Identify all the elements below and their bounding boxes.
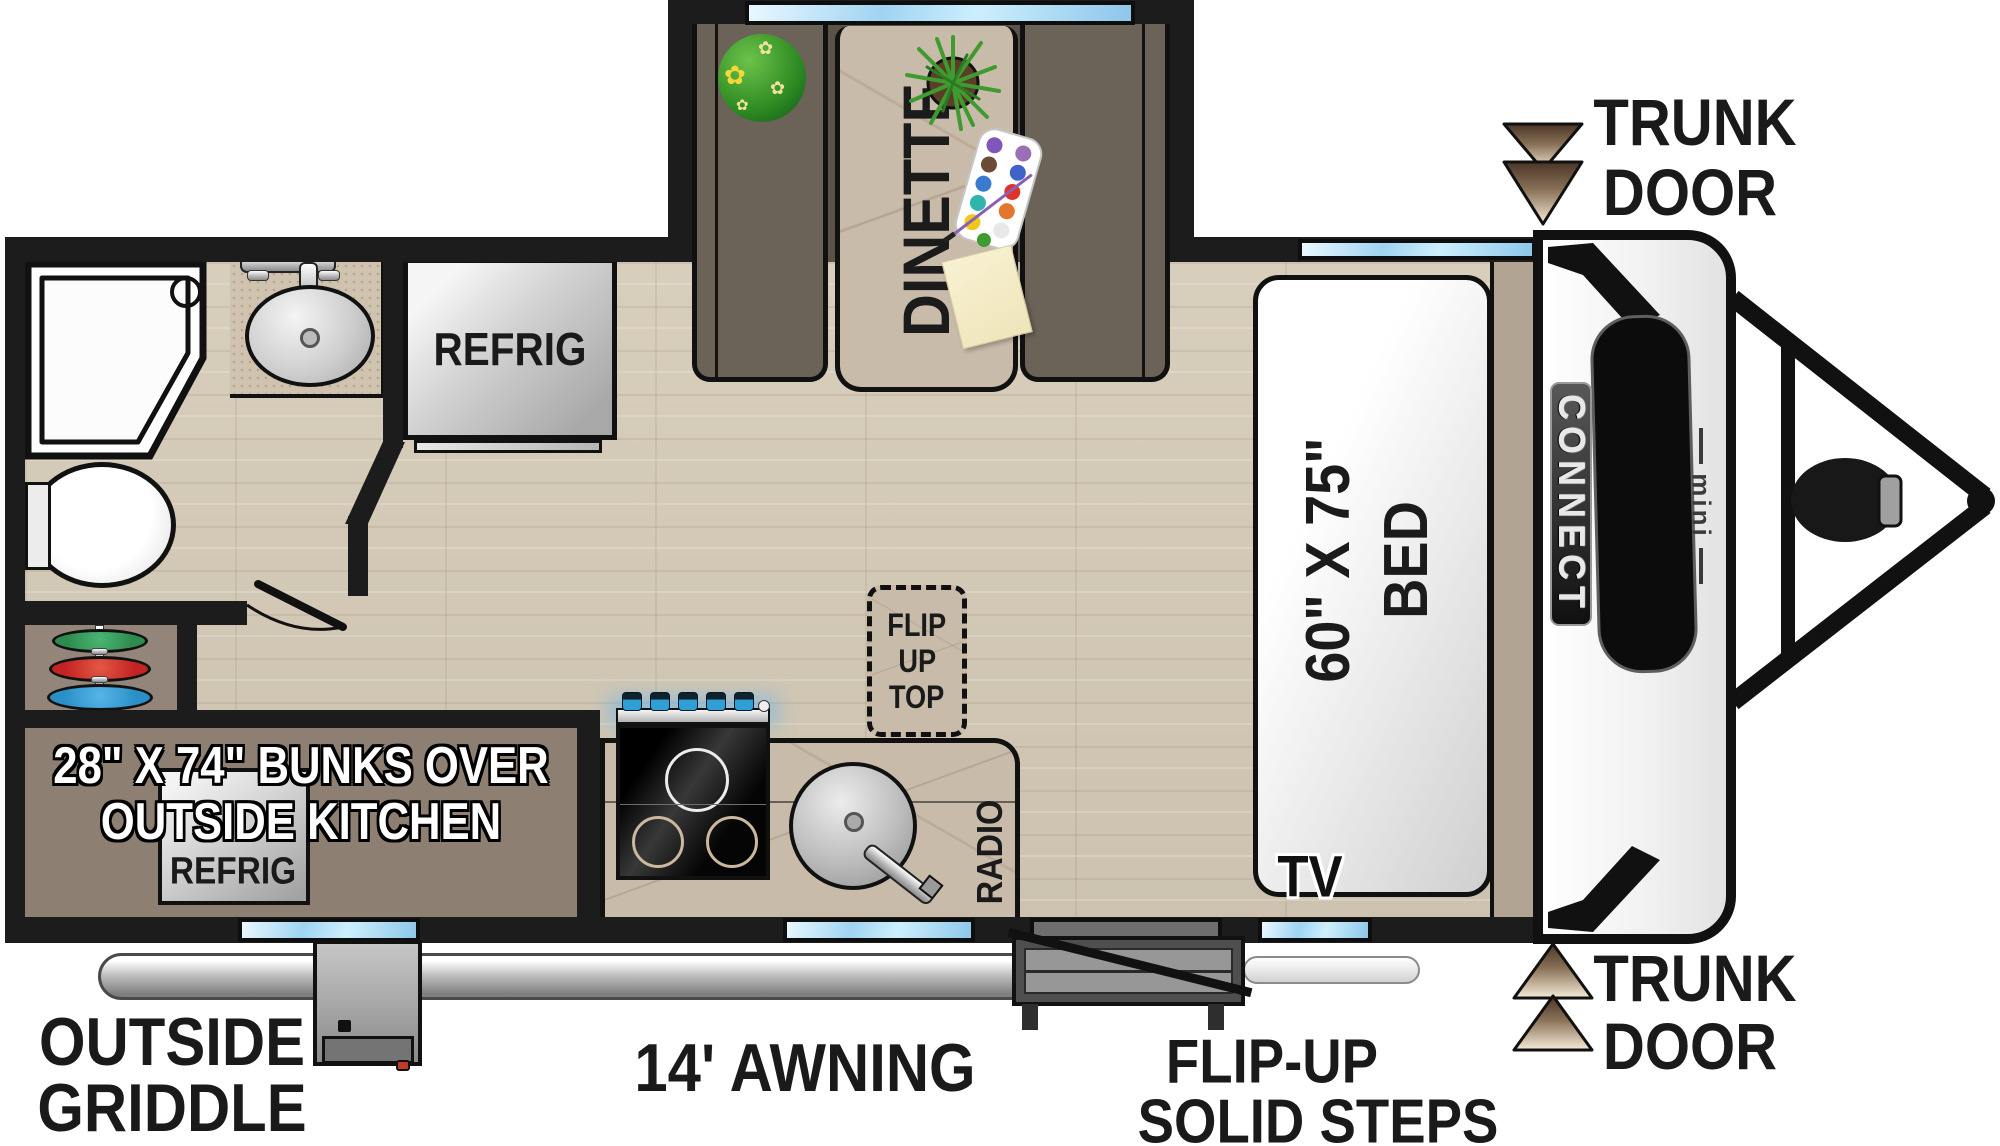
kitchen-sink-drain-icon (844, 812, 864, 832)
bunks-label-line1: 28" X 74" BUNKS OVER (53, 736, 548, 796)
outside-kitchen-refrig-label: REFRIG (170, 851, 296, 894)
griddle-port (338, 1020, 351, 1032)
flip-up-steps-label-line2: SOLID STEPS (1138, 1087, 1499, 1146)
flip-up-top-label-line2: UP (898, 643, 936, 679)
outside-griddle-label-line2: GRIDDLE (37, 1069, 306, 1146)
flower-icon: ✿ (758, 38, 773, 59)
refrigerator-label: REFRIG (434, 322, 587, 376)
toilet-tank (25, 482, 51, 570)
mini-trim-line (1699, 548, 1703, 584)
flower-icon: ✿ (724, 60, 746, 91)
stove-cooktop (616, 724, 770, 880)
awning-tube (98, 953, 1108, 1000)
plate-pole-collar (91, 648, 108, 655)
flip-up-top-label-line1: FLIP (888, 607, 947, 643)
plate-blue (47, 684, 153, 711)
flower-icon: ✿ (736, 96, 749, 114)
paint-palette-icon (938, 126, 1058, 256)
cabinet-wall-right (177, 623, 197, 712)
bunk-wall-top (5, 710, 600, 728)
seat-cushion-line (1142, 24, 1145, 377)
bath-faucet-handle-left (247, 270, 269, 281)
stove-knob-icon (734, 692, 754, 711)
flower-icon: ✿ (770, 78, 785, 99)
bath-faucet-handle-right (318, 270, 340, 281)
bunk-window (238, 918, 420, 942)
hall-wall (348, 516, 368, 596)
coupler-icon (1967, 487, 1995, 515)
bedroom-side-window (1258, 918, 1372, 942)
mini-trim-label: mini (1686, 473, 1717, 538)
trunk-door-top-label-line1: TRUNK (1593, 84, 1796, 160)
connect-badge-label: CONNECT (1550, 394, 1592, 614)
kitchen-window (783, 918, 975, 942)
shower (20, 258, 210, 463)
wall-left (5, 237, 25, 943)
bed-word-label: BED (1368, 437, 1446, 682)
bed-label: 60" X 75" BED (1290, 424, 1446, 697)
floorplan-canvas: REFRIG DINETTE ✿ ✿ ✿ ✿ (0, 0, 2000, 1146)
bed-platform (1490, 262, 1538, 917)
refrigerator-tray (414, 440, 602, 453)
step-leg (1022, 1004, 1038, 1030)
slide-wall-left (668, 0, 692, 262)
wall-top-left (5, 237, 668, 262)
bath-wall-right (383, 258, 403, 448)
stove-igniter (758, 700, 770, 712)
bath-wall-bottom (5, 601, 247, 625)
plant-icon (903, 33, 1003, 133)
hitch-a-frame (1733, 270, 1995, 732)
flip-up-top-cabinet: FLIP UP TOP (867, 585, 967, 737)
awning-label: 14' AWNING (634, 1029, 975, 1107)
bunk-wall-right (577, 710, 600, 917)
trunk-door-bottom-label-line1: TRUNK (1593, 940, 1796, 1016)
stove-knob-icon (706, 692, 726, 711)
bath-sink-drain-icon (300, 328, 320, 348)
plate-pole-collar (91, 676, 108, 683)
burner-icon (665, 748, 729, 812)
tongue-jack-icon (1879, 476, 1901, 526)
steps-rail (1243, 956, 1420, 984)
ball-ornament: ✿ ✿ ✿ ✿ (718, 34, 806, 122)
griddle-knob-icon (396, 1060, 410, 1071)
cooktop-seam (620, 804, 766, 805)
burner-icon (632, 816, 684, 868)
bed-size-label: 60" X 75" (1290, 437, 1368, 682)
burner-icon (706, 816, 758, 868)
stove-knob-icon (622, 692, 642, 711)
bedroom-front-window (1298, 239, 1536, 260)
mini-trim-line (1699, 428, 1703, 464)
radio-label: RADIO (969, 800, 1011, 904)
dinette-window (745, 1, 1135, 25)
trunk-door-bottom-label-line2: DOOR (1603, 1008, 1777, 1084)
stove-knob-icon (678, 692, 698, 711)
stove-knob-icon (650, 692, 670, 711)
trunk-door-arrow-down-icon (1496, 116, 1590, 230)
bunks-label-line2: OUTSIDE KITCHEN (101, 792, 501, 852)
tv-label: TV (1277, 844, 1342, 911)
trunk-door-top-label-line2: DOOR (1603, 154, 1777, 230)
slide-wall-right (1170, 0, 1194, 262)
flip-up-top-label-line3: TOP (889, 679, 944, 715)
step-tread-line (1024, 970, 1233, 973)
front-window-tint (1589, 314, 1698, 674)
trunk-door-arrow-up-icon (1506, 938, 1600, 1052)
